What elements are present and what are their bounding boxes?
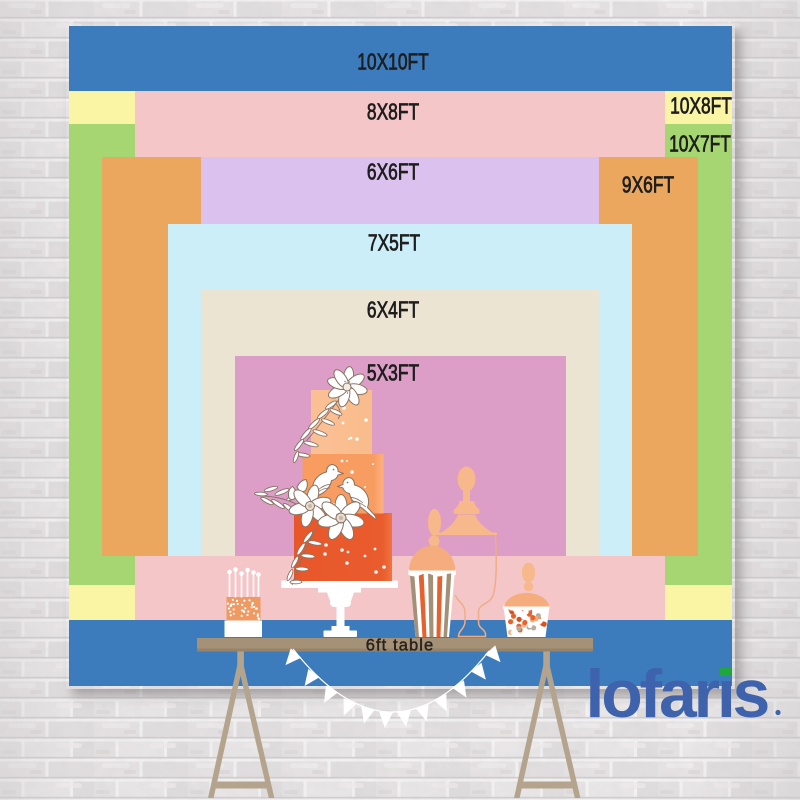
svg-text:lofarıs: lofarıs (586, 656, 769, 732)
svg-text:6ft table: 6ft table (366, 637, 435, 655)
